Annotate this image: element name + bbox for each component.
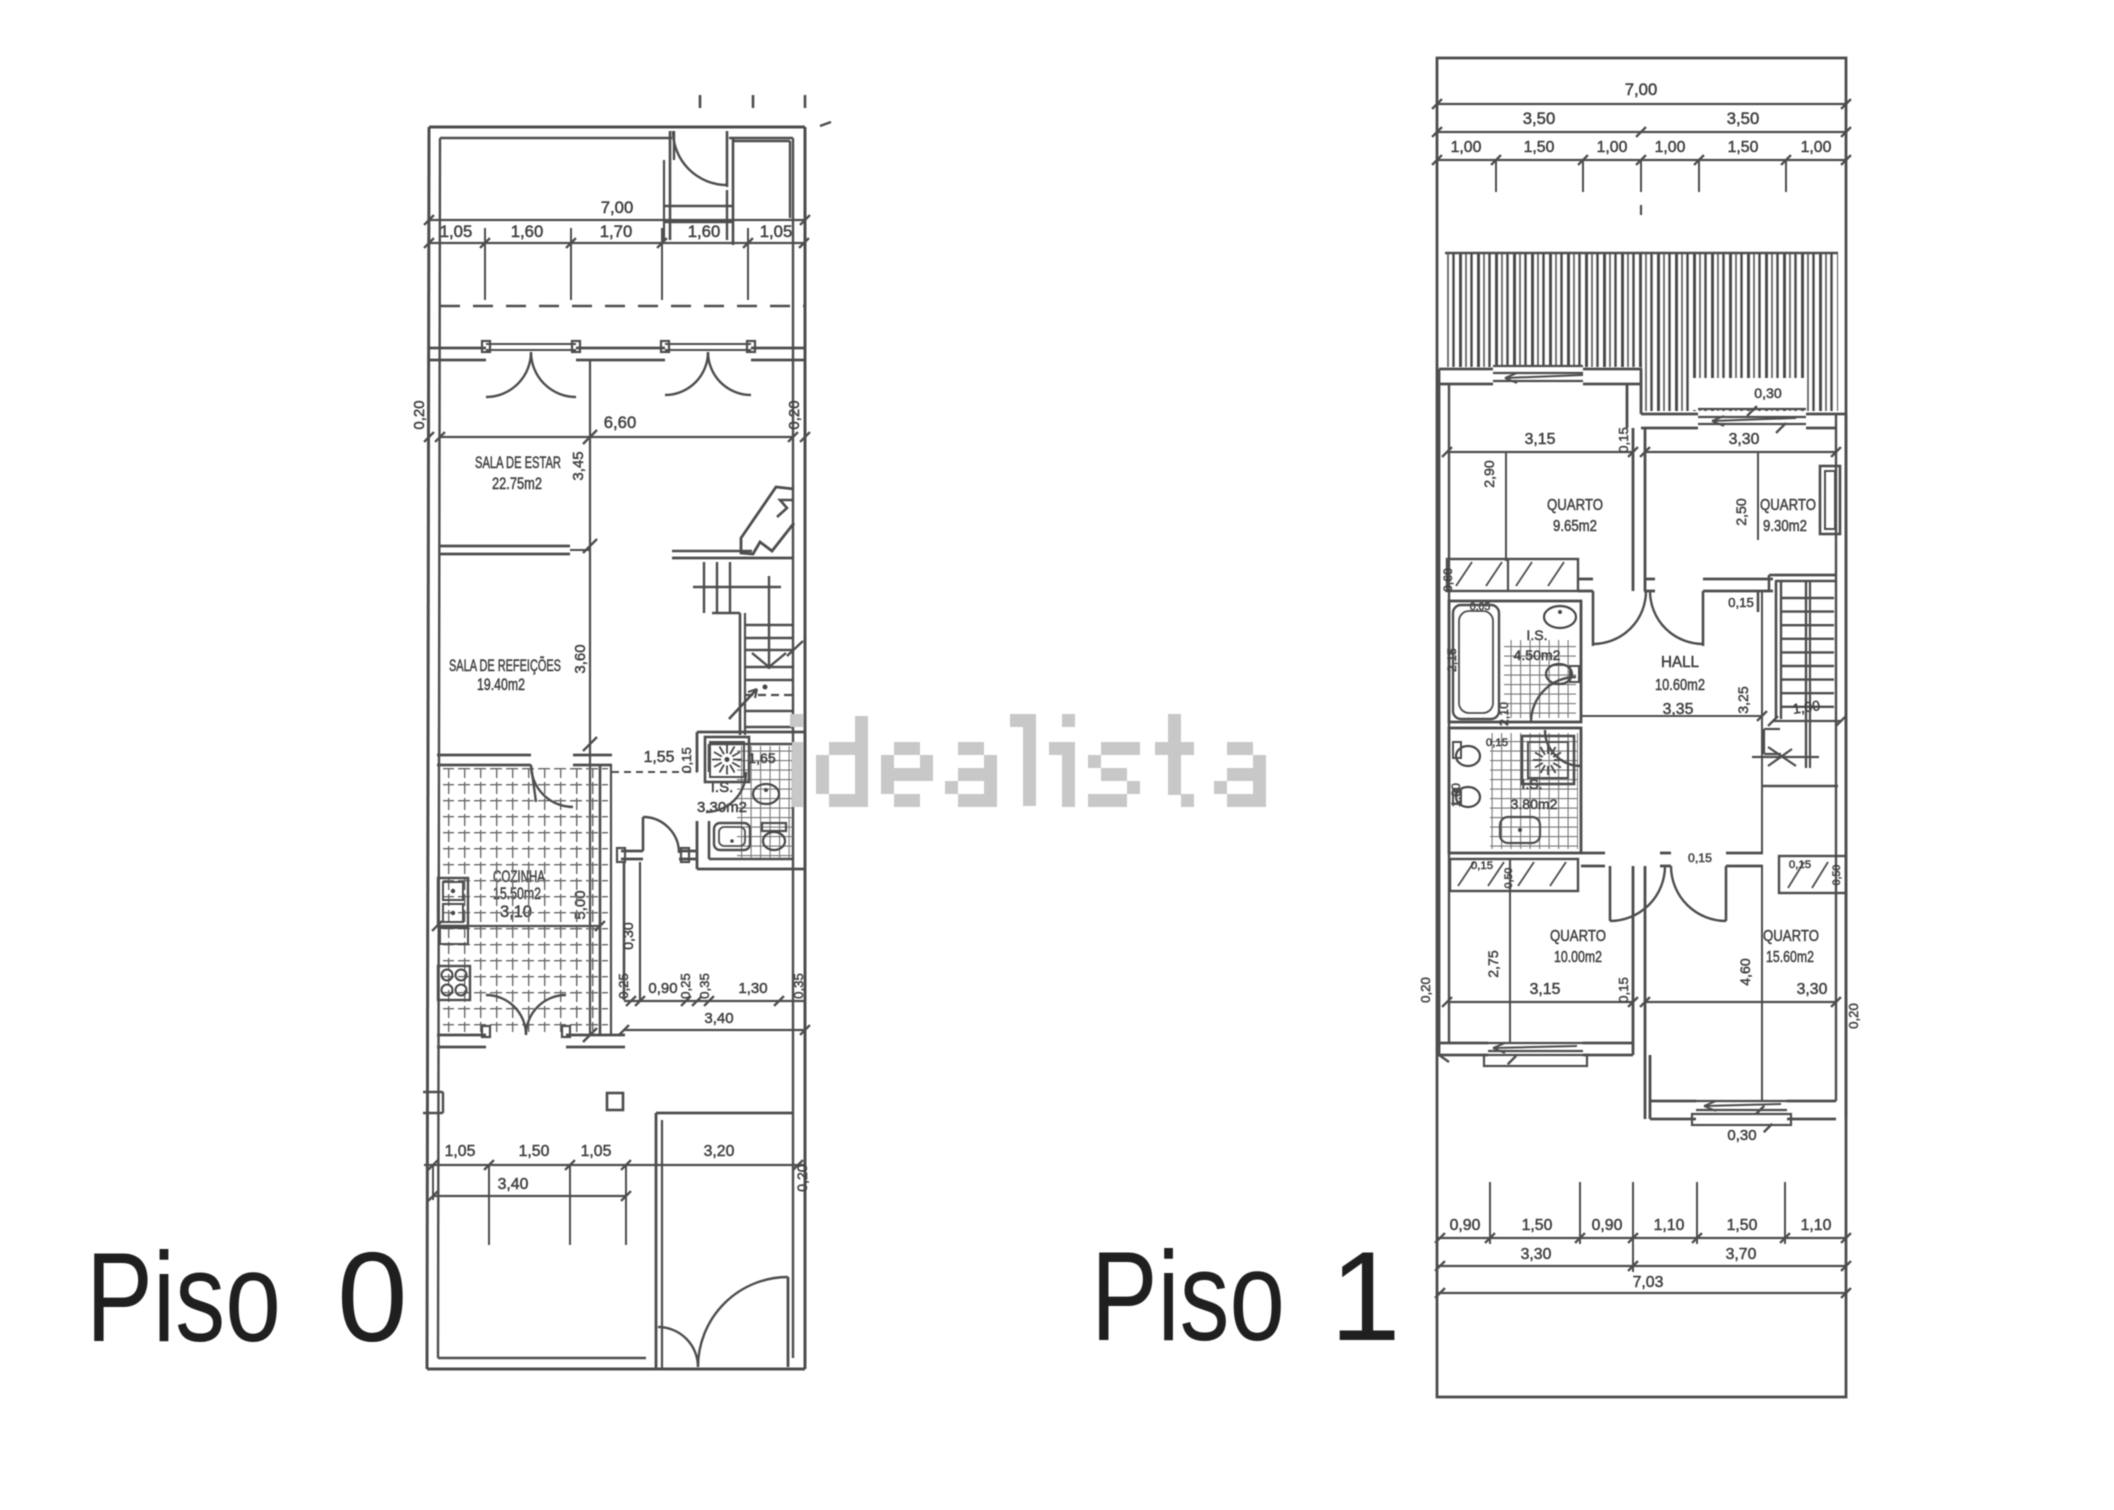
svg-text:3,15: 3,15 [1530,981,1561,998]
svg-text:0,25: 0,25 [616,973,631,999]
svg-text:3,50: 3,50 [1727,109,1759,128]
svg-text:3,60: 3,60 [572,644,589,673]
svg-text:1,05: 1,05 [445,1143,476,1160]
svg-text:0,60: 0,60 [1441,568,1455,592]
svg-text:QUARTO: QUARTO [1550,928,1606,945]
svg-text:0,20: 0,20 [794,1164,810,1192]
svg-text:9.65m2: 9.65m2 [1553,518,1597,535]
svg-text:0,35: 0,35 [791,973,806,999]
svg-text:0: 0 [337,1226,408,1368]
svg-text:3,25: 3,25 [1735,686,1751,714]
svg-text:0,15: 0,15 [679,747,694,773]
svg-text:SALA DE ESTAR: SALA DE ESTAR [475,454,561,472]
svg-text:1,50: 1,50 [519,1143,550,1160]
svg-text:1,65: 1,65 [748,750,776,766]
svg-text:3,70: 3,70 [1726,1246,1757,1263]
svg-text:1,05: 1,05 [581,1143,612,1160]
svg-text:0,15: 0,15 [1616,427,1631,453]
svg-text:0,15: 0,15 [1471,860,1493,872]
svg-text:4.50m2: 4.50m2 [1513,647,1560,663]
svg-text:1,70: 1,70 [600,222,632,241]
svg-text:0,20: 0,20 [786,400,803,429]
svg-text:0,90: 0,90 [1450,1217,1481,1234]
svg-text:4,60: 4,60 [1737,958,1753,986]
svg-text:1,60: 1,60 [511,222,543,241]
svg-text:0,20: 0,20 [1418,977,1433,1003]
svg-text:1,00: 1,00 [1792,697,1822,717]
svg-text:1,10: 1,10 [1654,1217,1685,1234]
svg-text:0,50: 0,50 [1503,868,1515,889]
svg-text:0,90: 0,90 [648,980,677,997]
svg-text:1,00: 1,00 [1655,139,1686,156]
svg-text:1,50: 1,50 [1522,1217,1553,1234]
svg-text:3,30: 3,30 [1797,981,1828,998]
svg-text:1,60: 1,60 [688,222,720,241]
svg-text:0,30: 0,30 [1754,385,1782,401]
svg-text:I.S.: I.S. [1526,627,1547,643]
svg-text:1,05: 1,05 [760,222,792,241]
svg-text:2,75: 2,75 [1485,950,1501,978]
svg-text:QUARTO: QUARTO [1760,497,1816,514]
svg-text:0,20: 0,20 [411,400,428,429]
svg-text:0,15: 0,15 [1789,859,1811,871]
svg-text:1,50: 1,50 [1524,139,1555,156]
svg-text:22.75m2: 22.75m2 [492,475,542,493]
svg-text:7,03: 7,03 [1633,1274,1664,1291]
svg-text:SALA DE REFEIÇÕES: SALA DE REFEIÇÕES [449,655,561,675]
svg-text:0,15: 0,15 [1728,595,1754,610]
svg-text:10.00m2: 10.00m2 [1554,949,1602,966]
svg-text:0,15: 0,15 [1688,851,1712,865]
svg-text:3,15: 3,15 [1525,431,1556,448]
svg-text:7,00: 7,00 [1625,80,1657,99]
svg-text:2,90: 2,90 [1481,460,1497,488]
svg-text:QUARTO: QUARTO [1763,928,1819,945]
svg-text:15.60m2: 15.60m2 [1766,949,1814,966]
svg-text:3,45: 3,45 [570,451,587,480]
svg-text:1,00: 1,00 [1451,139,1482,156]
svg-text:3,20: 3,20 [704,1143,735,1160]
svg-text:0,50: 0,50 [1831,865,1843,886]
svg-text:1,00: 1,00 [1801,139,1832,156]
svg-text:0,30: 0,30 [620,922,636,950]
svg-text:HALL: HALL [1661,654,1699,671]
svg-text:1,10: 1,10 [1801,1217,1832,1234]
svg-text:9.30m2: 9.30m2 [1763,518,1807,535]
svg-text:19.40m2: 19.40m2 [477,676,525,694]
svg-text:0,25: 0,25 [678,973,693,999]
svg-text:3,40: 3,40 [704,1010,733,1027]
svg-text:0,90: 0,90 [1592,1217,1623,1234]
svg-text:1,00: 1,00 [1597,139,1628,156]
svg-text:3,50: 3,50 [1523,109,1555,128]
svg-text:0,15: 0,15 [1616,977,1631,1003]
svg-text:3.80m2: 3.80m2 [1510,796,1557,812]
svg-text:1,50: 1,50 [1727,1217,1758,1234]
svg-text:1,05: 1,05 [440,222,472,241]
svg-text:0,30: 0,30 [1727,1127,1756,1144]
svg-text:1,55: 1,55 [644,749,675,766]
svg-text:Piso: Piso [1091,1225,1285,1367]
svg-text:10.60m2: 10.60m2 [1655,677,1705,694]
svg-text:1: 1 [1330,1225,1401,1367]
svg-text:3,40: 3,40 [498,1176,529,1193]
svg-text:2,50: 2,50 [1733,498,1749,526]
svg-text:6,60: 6,60 [604,413,636,432]
svg-text:3,30: 3,30 [1729,431,1760,448]
svg-text:0,15: 0,15 [1486,737,1508,749]
svg-text:1,50: 1,50 [1728,139,1759,156]
svg-text:Piso: Piso [86,1226,281,1368]
svg-text:3,30: 3,30 [1521,1246,1552,1263]
svg-text:7,00: 7,00 [601,198,633,217]
svg-text:QUARTO: QUARTO [1547,497,1603,514]
svg-text:1,30: 1,30 [738,980,767,997]
svg-text:0,20: 0,20 [1846,1003,1861,1029]
svg-text:0,35: 0,35 [697,973,712,999]
